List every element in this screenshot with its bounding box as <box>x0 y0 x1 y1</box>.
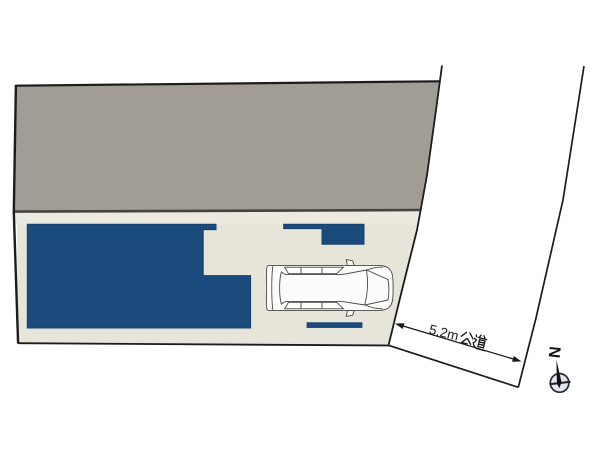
svg-text:N: N <box>545 345 563 358</box>
svg-text:5.2m: 5.2m <box>427 322 460 344</box>
